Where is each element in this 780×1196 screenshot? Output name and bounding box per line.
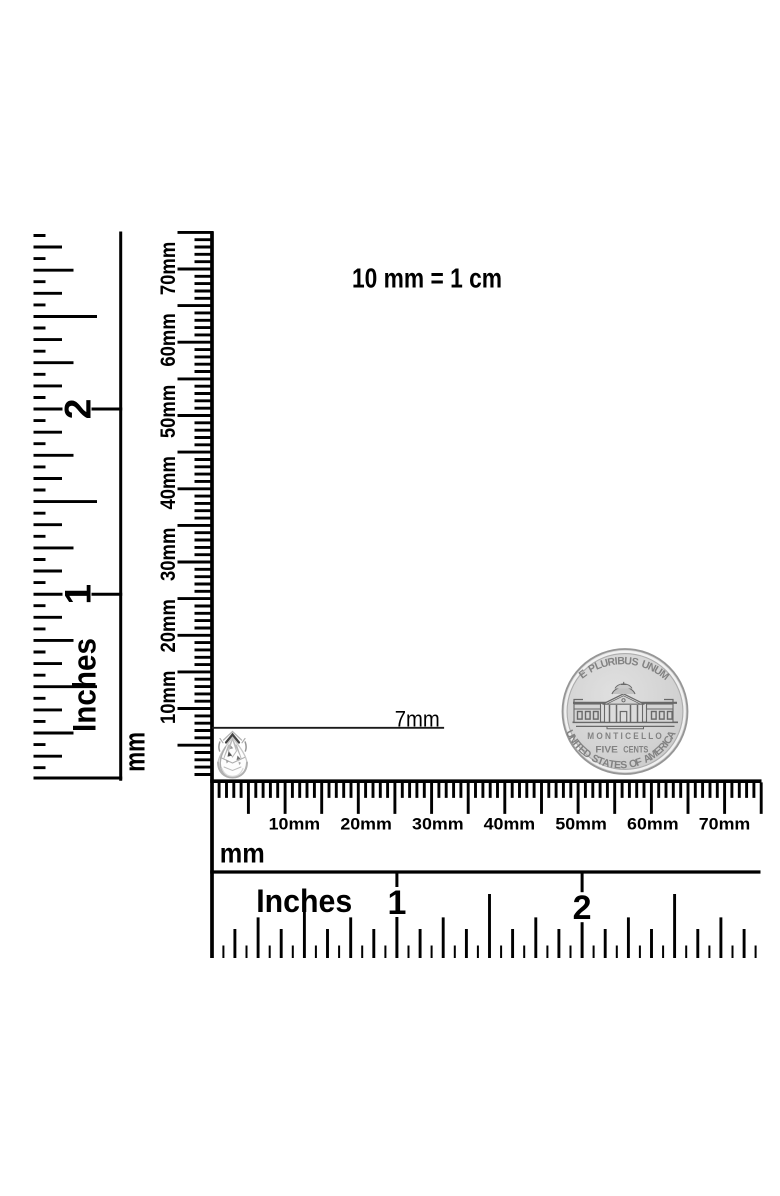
svg-text:2: 2	[573, 889, 592, 927]
svg-text:50mm: 50mm	[555, 814, 607, 833]
svg-text:2: 2	[58, 399, 99, 420]
svg-text:70mm: 70mm	[156, 242, 180, 296]
svg-text:60mm: 60mm	[156, 313, 180, 367]
svg-text:CENTS: CENTS	[623, 744, 648, 755]
svg-text:M O N T I C E L L O: M O N T I C E L L O	[587, 731, 662, 741]
svg-text:10mm: 10mm	[156, 671, 180, 725]
svg-text:mm: mm	[119, 732, 151, 772]
svg-text:50mm: 50mm	[156, 385, 180, 439]
svg-text:20mm: 20mm	[156, 599, 180, 653]
svg-text:1: 1	[58, 584, 99, 605]
svg-text:FIVE: FIVE	[595, 744, 617, 755]
svg-text:10 mm = 1 cm: 10 mm = 1 cm	[352, 263, 502, 294]
svg-text:S: S	[620, 759, 628, 771]
svg-text:30mm: 30mm	[412, 814, 464, 833]
svg-text:Inches: Inches	[256, 883, 352, 919]
svg-text:Inches: Inches	[66, 638, 102, 732]
svg-text:mm: mm	[220, 838, 265, 869]
svg-text:40mm: 40mm	[156, 456, 180, 510]
svg-text:7mm: 7mm	[395, 707, 440, 732]
svg-text:60mm: 60mm	[627, 814, 679, 833]
svg-text:70mm: 70mm	[699, 814, 751, 833]
svg-text:1: 1	[387, 884, 406, 922]
svg-text:20mm: 20mm	[340, 814, 392, 833]
svg-text:10mm: 10mm	[269, 814, 321, 833]
svg-text:40mm: 40mm	[484, 814, 536, 833]
svg-text:30mm: 30mm	[156, 528, 180, 582]
